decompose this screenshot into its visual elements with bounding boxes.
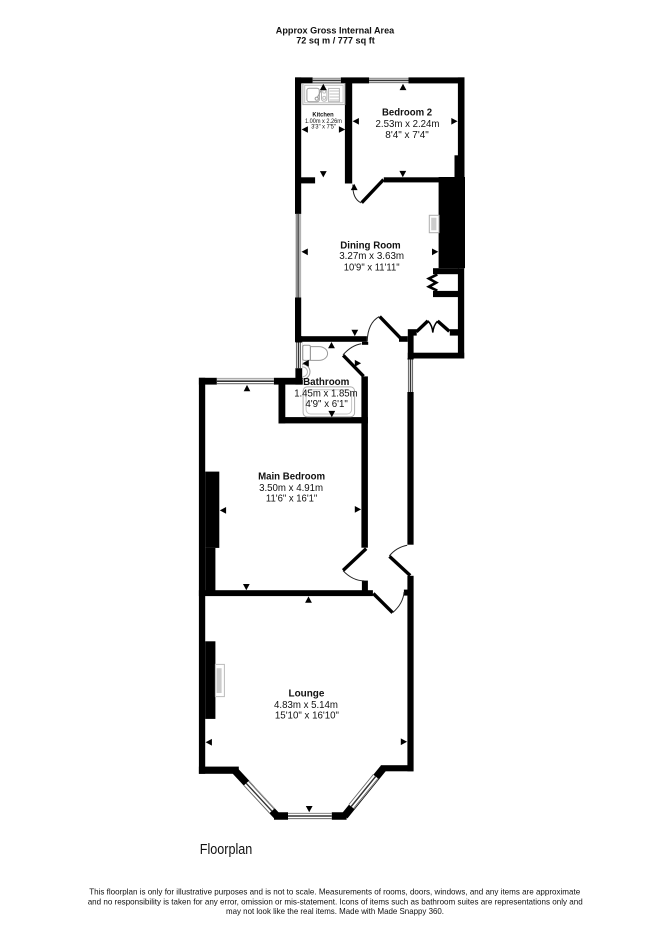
svg-text:Main Bedroom: Main Bedroom: [258, 471, 325, 482]
svg-text:10'9" x 11'11": 10'9" x 11'11": [344, 261, 400, 273]
svg-text:Floorplan: Floorplan: [200, 842, 253, 858]
svg-text:11'6" x 16'1": 11'6" x 16'1": [266, 493, 318, 505]
svg-text:72 sq m / 777 sq ft: 72 sq m / 777 sq ft: [296, 35, 375, 46]
svg-text:and no responsibility is taken: and no responsibility is taken for any e…: [88, 897, 583, 906]
svg-text:may not look like the real ite: may not look like the real items. Made w…: [226, 907, 444, 916]
svg-text:4'9" x 6'1": 4'9" x 6'1": [305, 398, 348, 410]
svg-text:8'4" x 7'4": 8'4" x 7'4": [385, 129, 429, 141]
svg-text:3'3" x 7'5": 3'3" x 7'5": [311, 123, 336, 130]
svg-text:Bedroom 2: Bedroom 2: [382, 108, 433, 119]
svg-text:3.27m x 3.63m: 3.27m x 3.63m: [339, 250, 404, 262]
svg-text:Lounge: Lounge: [289, 688, 325, 699]
svg-text:15'10" x 16'10": 15'10" x 16'10": [275, 710, 339, 722]
svg-text:This floorplan is only for ill: This floorplan is only for illustrative …: [89, 888, 580, 897]
